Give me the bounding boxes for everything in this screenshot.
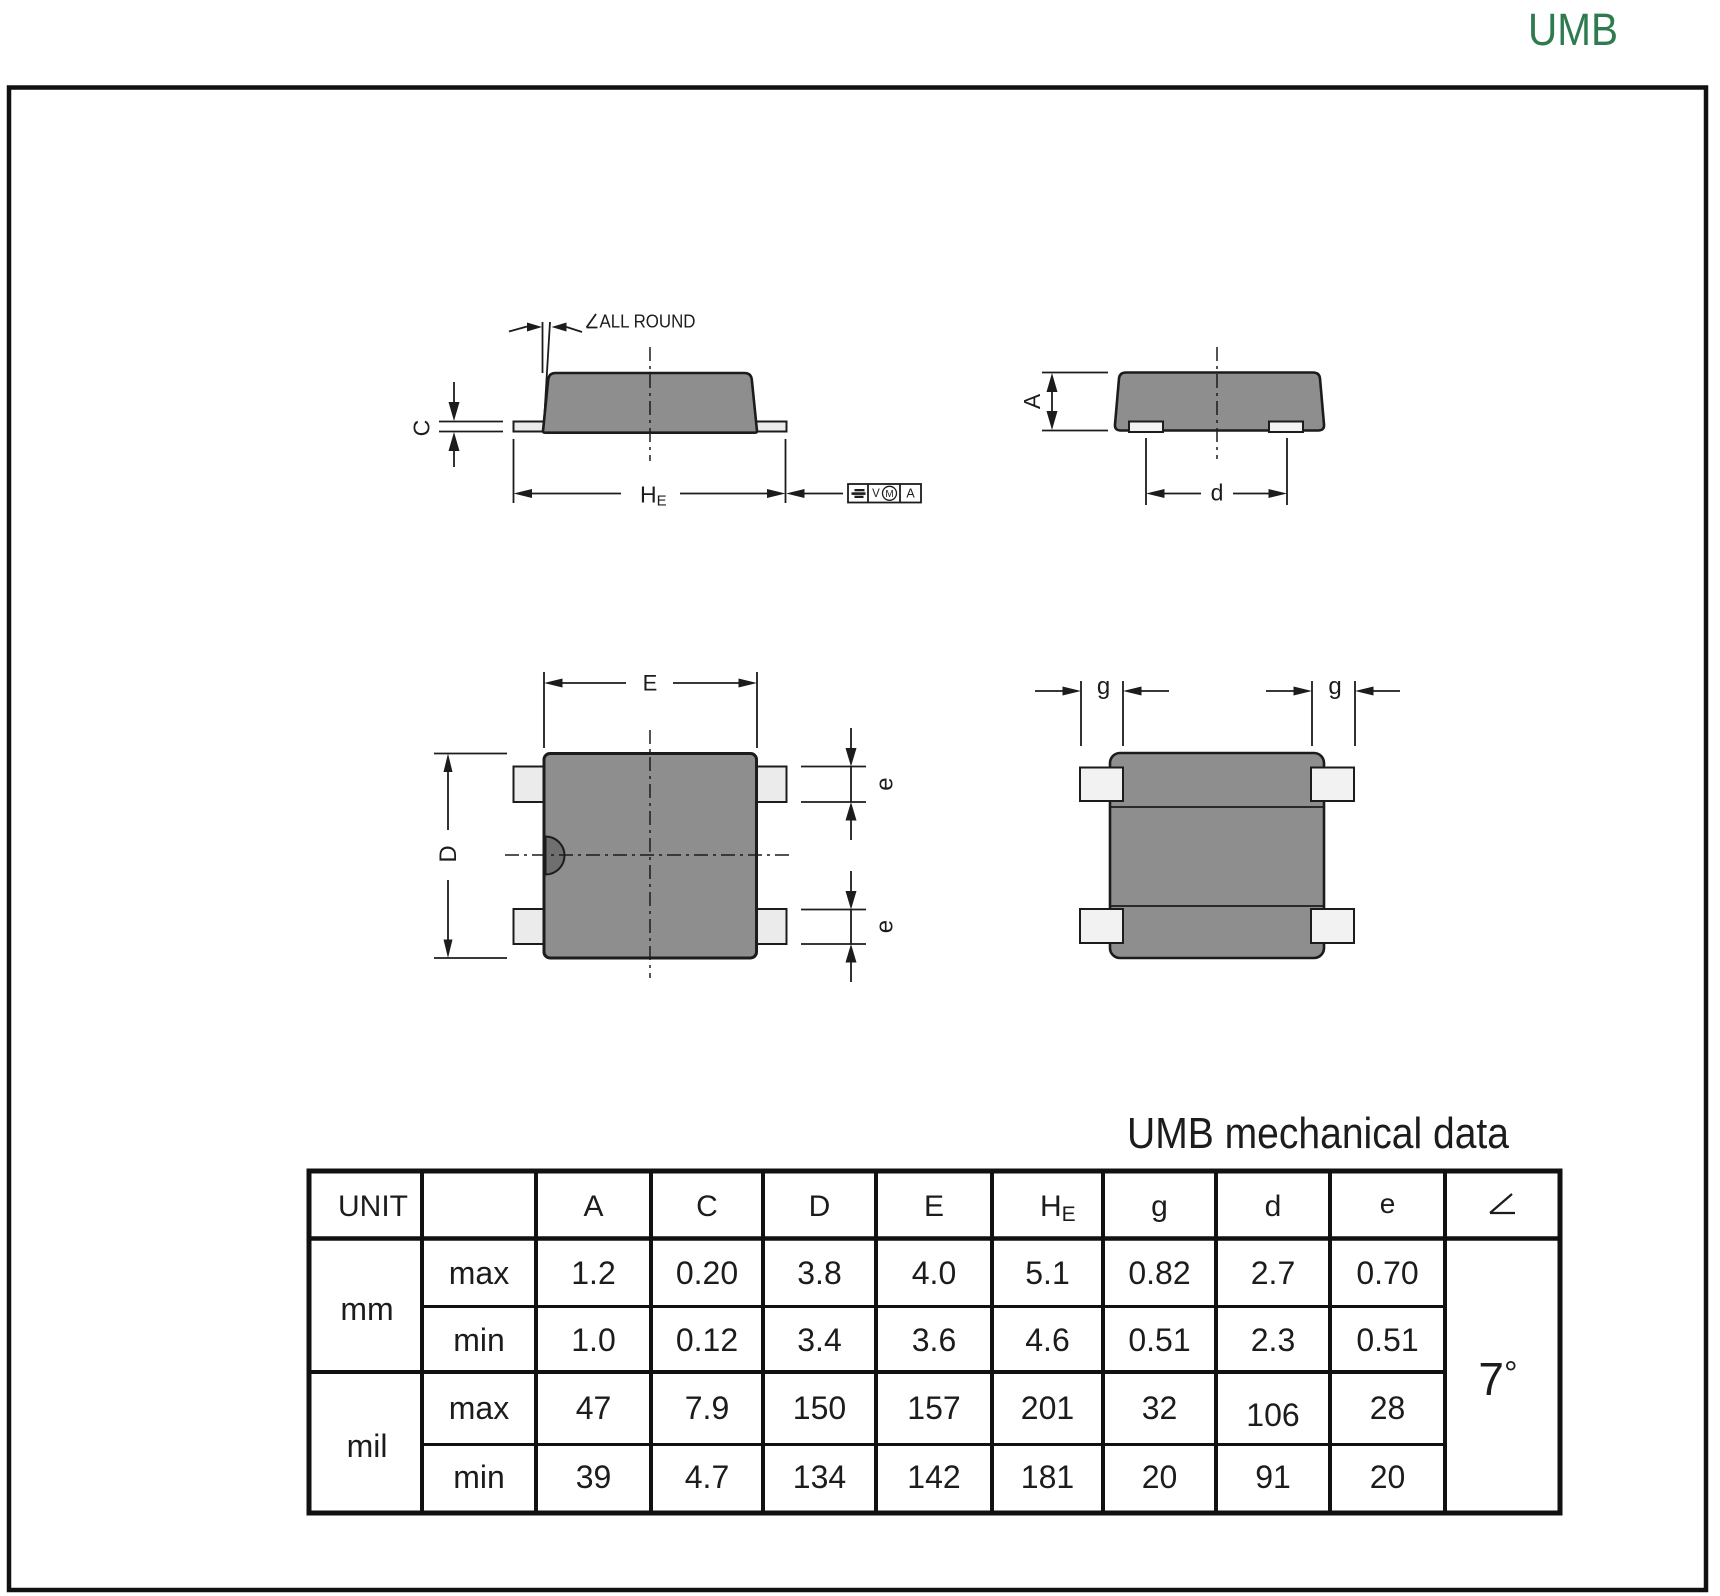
- svg-text:5.1: 5.1: [1025, 1255, 1069, 1291]
- svg-text:4.6: 4.6: [1025, 1322, 1069, 1358]
- svg-text:0.82: 0.82: [1128, 1255, 1190, 1291]
- svg-text:0.20: 0.20: [676, 1255, 738, 1291]
- svg-text:157: 157: [907, 1390, 960, 1426]
- svg-text:e: e: [872, 920, 899, 933]
- svg-text:1.0: 1.0: [571, 1322, 615, 1358]
- svg-text:39: 39: [576, 1459, 612, 1495]
- svg-text:C: C: [696, 1190, 718, 1223]
- svg-text:3.4: 3.4: [797, 1322, 841, 1358]
- svg-text:UMB: UMB: [1528, 4, 1618, 55]
- svg-text:201: 201: [1021, 1390, 1074, 1426]
- svg-text:106: 106: [1246, 1397, 1299, 1433]
- svg-text:0.12: 0.12: [676, 1322, 738, 1358]
- svg-text:C: C: [409, 420, 435, 437]
- svg-text:0.70: 0.70: [1356, 1255, 1418, 1291]
- svg-text:20: 20: [1370, 1459, 1406, 1495]
- svg-text:181: 181: [1021, 1459, 1074, 1495]
- svg-text:2.3: 2.3: [1251, 1322, 1295, 1358]
- svg-text:min: min: [453, 1322, 505, 1358]
- svg-text:3.6: 3.6: [912, 1322, 956, 1358]
- svg-text:ALL ROUND: ALL ROUND: [600, 311, 696, 332]
- svg-text:E: E: [643, 671, 658, 696]
- svg-text:A: A: [583, 1190, 603, 1223]
- svg-text:A: A: [1019, 393, 1045, 409]
- svg-text:134: 134: [793, 1459, 846, 1495]
- svg-text:4.7: 4.7: [685, 1459, 729, 1495]
- svg-text:g: g: [1151, 1190, 1168, 1223]
- svg-text:D: D: [435, 845, 462, 862]
- svg-text:91: 91: [1255, 1459, 1291, 1495]
- svg-text:max: max: [449, 1255, 509, 1291]
- svg-text:d: d: [1265, 1190, 1282, 1223]
- svg-text:M: M: [885, 489, 893, 500]
- svg-text:E: E: [924, 1190, 944, 1223]
- svg-text:20: 20: [1142, 1459, 1178, 1495]
- svg-text:d: d: [1211, 480, 1224, 506]
- svg-text:28: 28: [1370, 1390, 1406, 1426]
- svg-text:4.0: 4.0: [912, 1255, 956, 1291]
- svg-text:7.9: 7.9: [685, 1390, 729, 1426]
- svg-text:A: A: [906, 487, 915, 501]
- svg-text:150: 150: [793, 1390, 846, 1426]
- svg-text:3.8: 3.8: [797, 1255, 841, 1291]
- svg-text:142: 142: [907, 1459, 960, 1495]
- svg-text:g: g: [1328, 673, 1341, 700]
- svg-text:47: 47: [576, 1390, 612, 1426]
- svg-text:UMB mechanical data: UMB mechanical data: [1127, 1109, 1509, 1158]
- svg-text:V: V: [872, 488, 880, 500]
- svg-text:mm: mm: [340, 1291, 393, 1327]
- svg-text:D: D: [809, 1190, 831, 1223]
- svg-text:0.51: 0.51: [1356, 1322, 1418, 1358]
- svg-text:1.2: 1.2: [571, 1255, 615, 1291]
- svg-text:min: min: [453, 1459, 505, 1495]
- svg-text:2.7: 2.7: [1251, 1255, 1295, 1291]
- svg-text:0.51: 0.51: [1128, 1322, 1190, 1358]
- svg-text:e: e: [872, 777, 899, 790]
- svg-text:32: 32: [1142, 1390, 1178, 1426]
- svg-text:mil: mil: [347, 1428, 388, 1464]
- svg-text:max: max: [449, 1390, 509, 1426]
- svg-text:g: g: [1097, 673, 1110, 700]
- svg-text:e: e: [1380, 1188, 1396, 1219]
- svg-text:UNIT: UNIT: [338, 1190, 408, 1223]
